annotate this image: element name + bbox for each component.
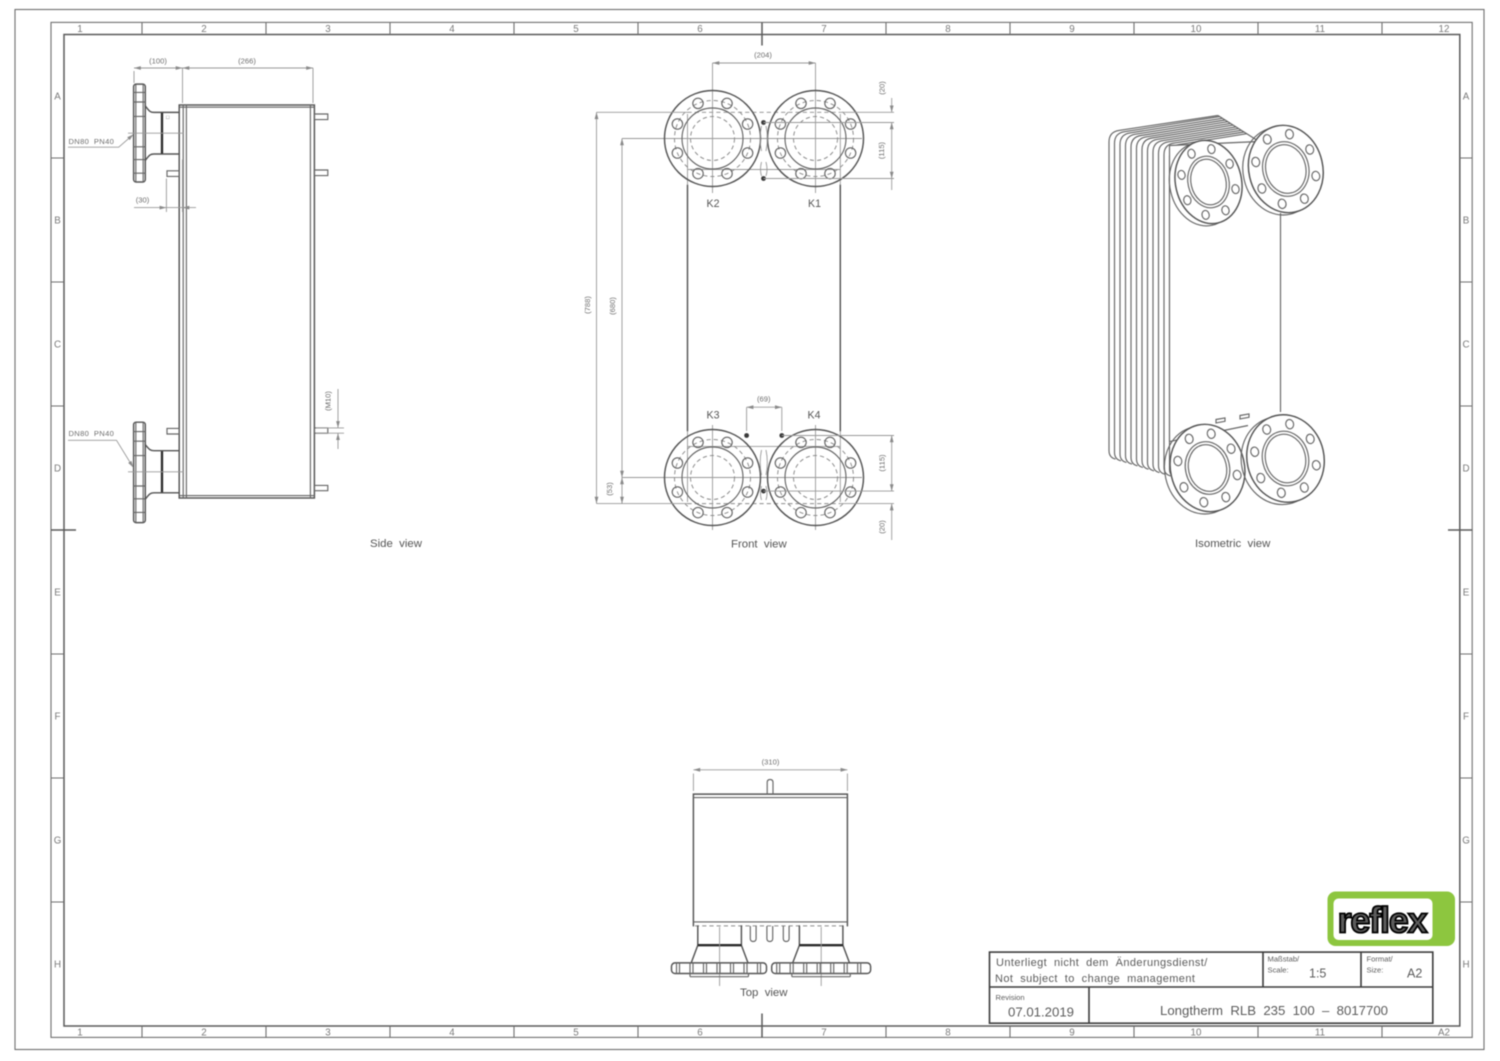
svg-text:Top view: Top view: [740, 987, 788, 999]
svg-text:(30): (30): [136, 196, 150, 205]
svg-text:B: B: [54, 216, 61, 227]
svg-text:(115): (115): [878, 454, 887, 472]
svg-text:(100): (100): [149, 57, 167, 66]
svg-text:G: G: [54, 836, 62, 847]
svg-text:1: 1: [77, 24, 82, 35]
svg-text:Isometric view: Isometric view: [1195, 538, 1271, 550]
svg-text:reflex: reflex: [1338, 900, 1428, 941]
svg-text:(310): (310): [762, 757, 780, 766]
svg-text:5: 5: [573, 24, 579, 35]
svg-text:G: G: [1462, 836, 1470, 847]
svg-text:H: H: [54, 960, 61, 971]
svg-text:A2: A2: [1438, 1027, 1450, 1038]
svg-text:A: A: [54, 92, 61, 103]
svg-text:Front view: Front view: [731, 539, 787, 551]
svg-text:K3: K3: [707, 410, 720, 422]
svg-text:D: D: [54, 464, 61, 475]
svg-text:B: B: [1463, 216, 1470, 227]
svg-text:4: 4: [449, 24, 455, 35]
svg-text:9: 9: [1069, 24, 1074, 35]
svg-text:07.01.2019: 07.01.2019: [1008, 1005, 1074, 1020]
svg-text:2: 2: [201, 24, 206, 35]
svg-text:3: 3: [325, 1027, 331, 1038]
svg-text:C: C: [54, 340, 61, 351]
svg-text:(M10): (M10): [324, 391, 333, 411]
svg-text:Format/: Format/: [1367, 955, 1394, 964]
svg-text:(204): (204): [754, 51, 772, 60]
svg-text:(788): (788): [583, 296, 592, 314]
svg-text:A: A: [1463, 92, 1470, 103]
svg-text:5: 5: [573, 1027, 579, 1038]
svg-text:DN80 PN40: DN80 PN40: [69, 429, 115, 438]
svg-text:K2: K2: [707, 198, 720, 210]
svg-text:11: 11: [1315, 1027, 1325, 1038]
svg-text:(680): (680): [608, 297, 617, 315]
svg-text:2: 2: [201, 1027, 206, 1038]
svg-text:8: 8: [945, 1027, 951, 1038]
svg-text:Unterliegt nicht dem Änderu: Unterliegt nicht dem Änderungsdienst/: [996, 957, 1208, 969]
svg-text:Maßstab/: Maßstab/: [1268, 955, 1301, 964]
svg-text:(20): (20): [878, 81, 887, 95]
svg-text:Size:: Size:: [1367, 966, 1384, 975]
svg-text:E: E: [1463, 588, 1470, 599]
svg-text:E: E: [54, 588, 61, 599]
svg-text:D: D: [1462, 464, 1469, 475]
svg-text:8: 8: [945, 24, 951, 35]
svg-text:(69): (69): [757, 395, 771, 404]
svg-text:C: C: [1462, 340, 1469, 351]
svg-text:Revision: Revision: [996, 993, 1025, 1002]
svg-text:9: 9: [1069, 1027, 1074, 1038]
svg-text:K4: K4: [808, 410, 821, 422]
svg-text:3: 3: [325, 24, 331, 35]
svg-text:10: 10: [1191, 1027, 1202, 1038]
svg-text:(20): (20): [878, 520, 887, 534]
svg-text:12: 12: [1439, 24, 1450, 35]
svg-text:Not subject to change mana: Not subject to change management: [995, 973, 1195, 985]
svg-text:Side view: Side view: [370, 538, 423, 550]
svg-text:1:5: 1:5: [1309, 967, 1326, 981]
svg-text:K1: K1: [808, 198, 821, 210]
svg-text:(115): (115): [877, 141, 886, 159]
svg-text:11: 11: [1315, 24, 1325, 35]
svg-text:7: 7: [821, 1027, 826, 1038]
svg-text:6: 6: [697, 24, 703, 35]
svg-text:A2: A2: [1407, 967, 1422, 981]
svg-text:(266): (266): [238, 57, 256, 66]
svg-text:F: F: [55, 712, 61, 723]
svg-text:6: 6: [697, 1027, 703, 1038]
svg-text:1: 1: [77, 1027, 82, 1038]
svg-text:F: F: [1463, 712, 1469, 723]
svg-text:Longtherm RLB 235 100 – 8: Longtherm RLB 235 100 – 8017700: [1160, 1003, 1388, 1018]
svg-text:(53): (53): [605, 482, 614, 496]
svg-text:7: 7: [821, 24, 826, 35]
svg-text:4: 4: [449, 1027, 455, 1038]
svg-text:H: H: [1462, 960, 1469, 971]
svg-text:DN80 PN40: DN80 PN40: [69, 137, 115, 146]
svg-text:10: 10: [1191, 24, 1202, 35]
svg-text:Scale:: Scale:: [1268, 966, 1289, 975]
